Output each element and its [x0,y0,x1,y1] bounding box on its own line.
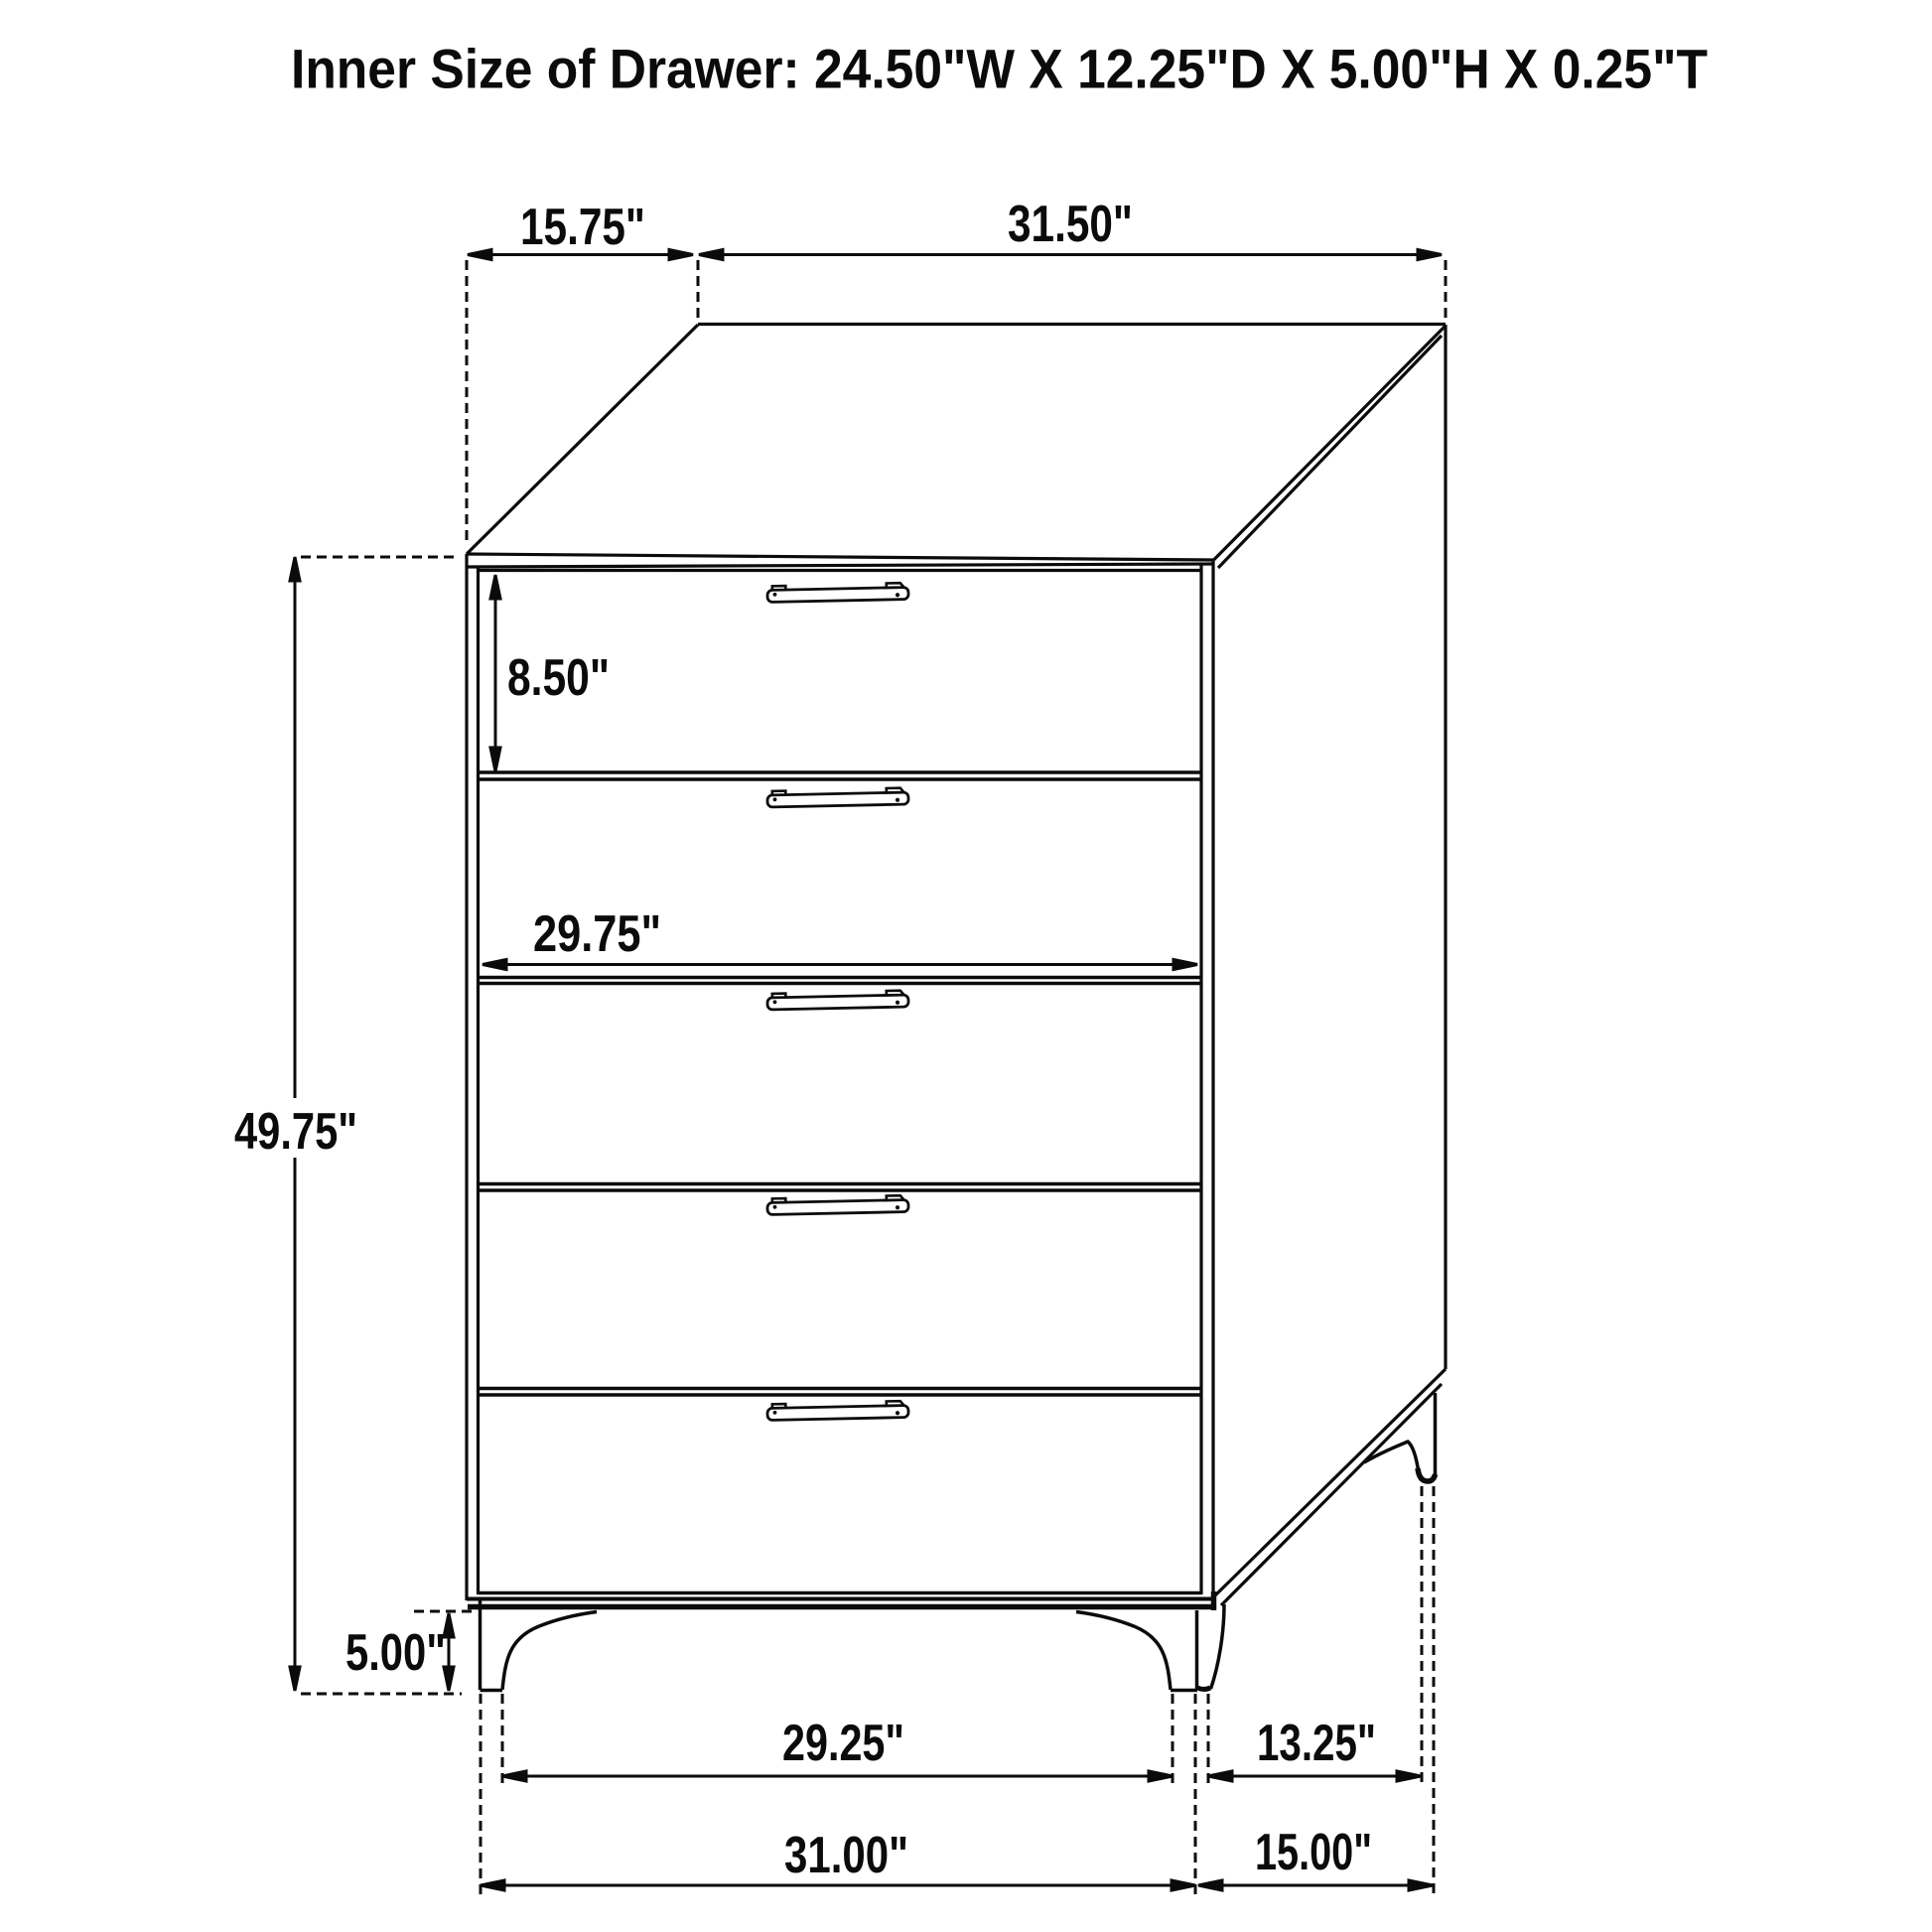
svg-text:49.75": 49.75" [234,1103,357,1161]
svg-text:31.00": 31.00" [784,1827,908,1884]
svg-text:5.00": 5.00" [345,1624,446,1682]
svg-text:31.50": 31.50" [1008,196,1133,253]
svg-text:13.25": 13.25" [1257,1715,1376,1772]
svg-text:15.00": 15.00" [1255,1824,1372,1881]
svg-text:15.75": 15.75" [520,199,645,256]
svg-text:Inner Size of Drawer: 24.50"W: Inner Size of Drawer: 24.50"W X 12.25"D … [291,38,1708,100]
svg-text:29.25": 29.25" [782,1715,904,1772]
svg-text:29.75": 29.75" [533,905,661,963]
svg-text:8.50": 8.50" [507,649,610,707]
